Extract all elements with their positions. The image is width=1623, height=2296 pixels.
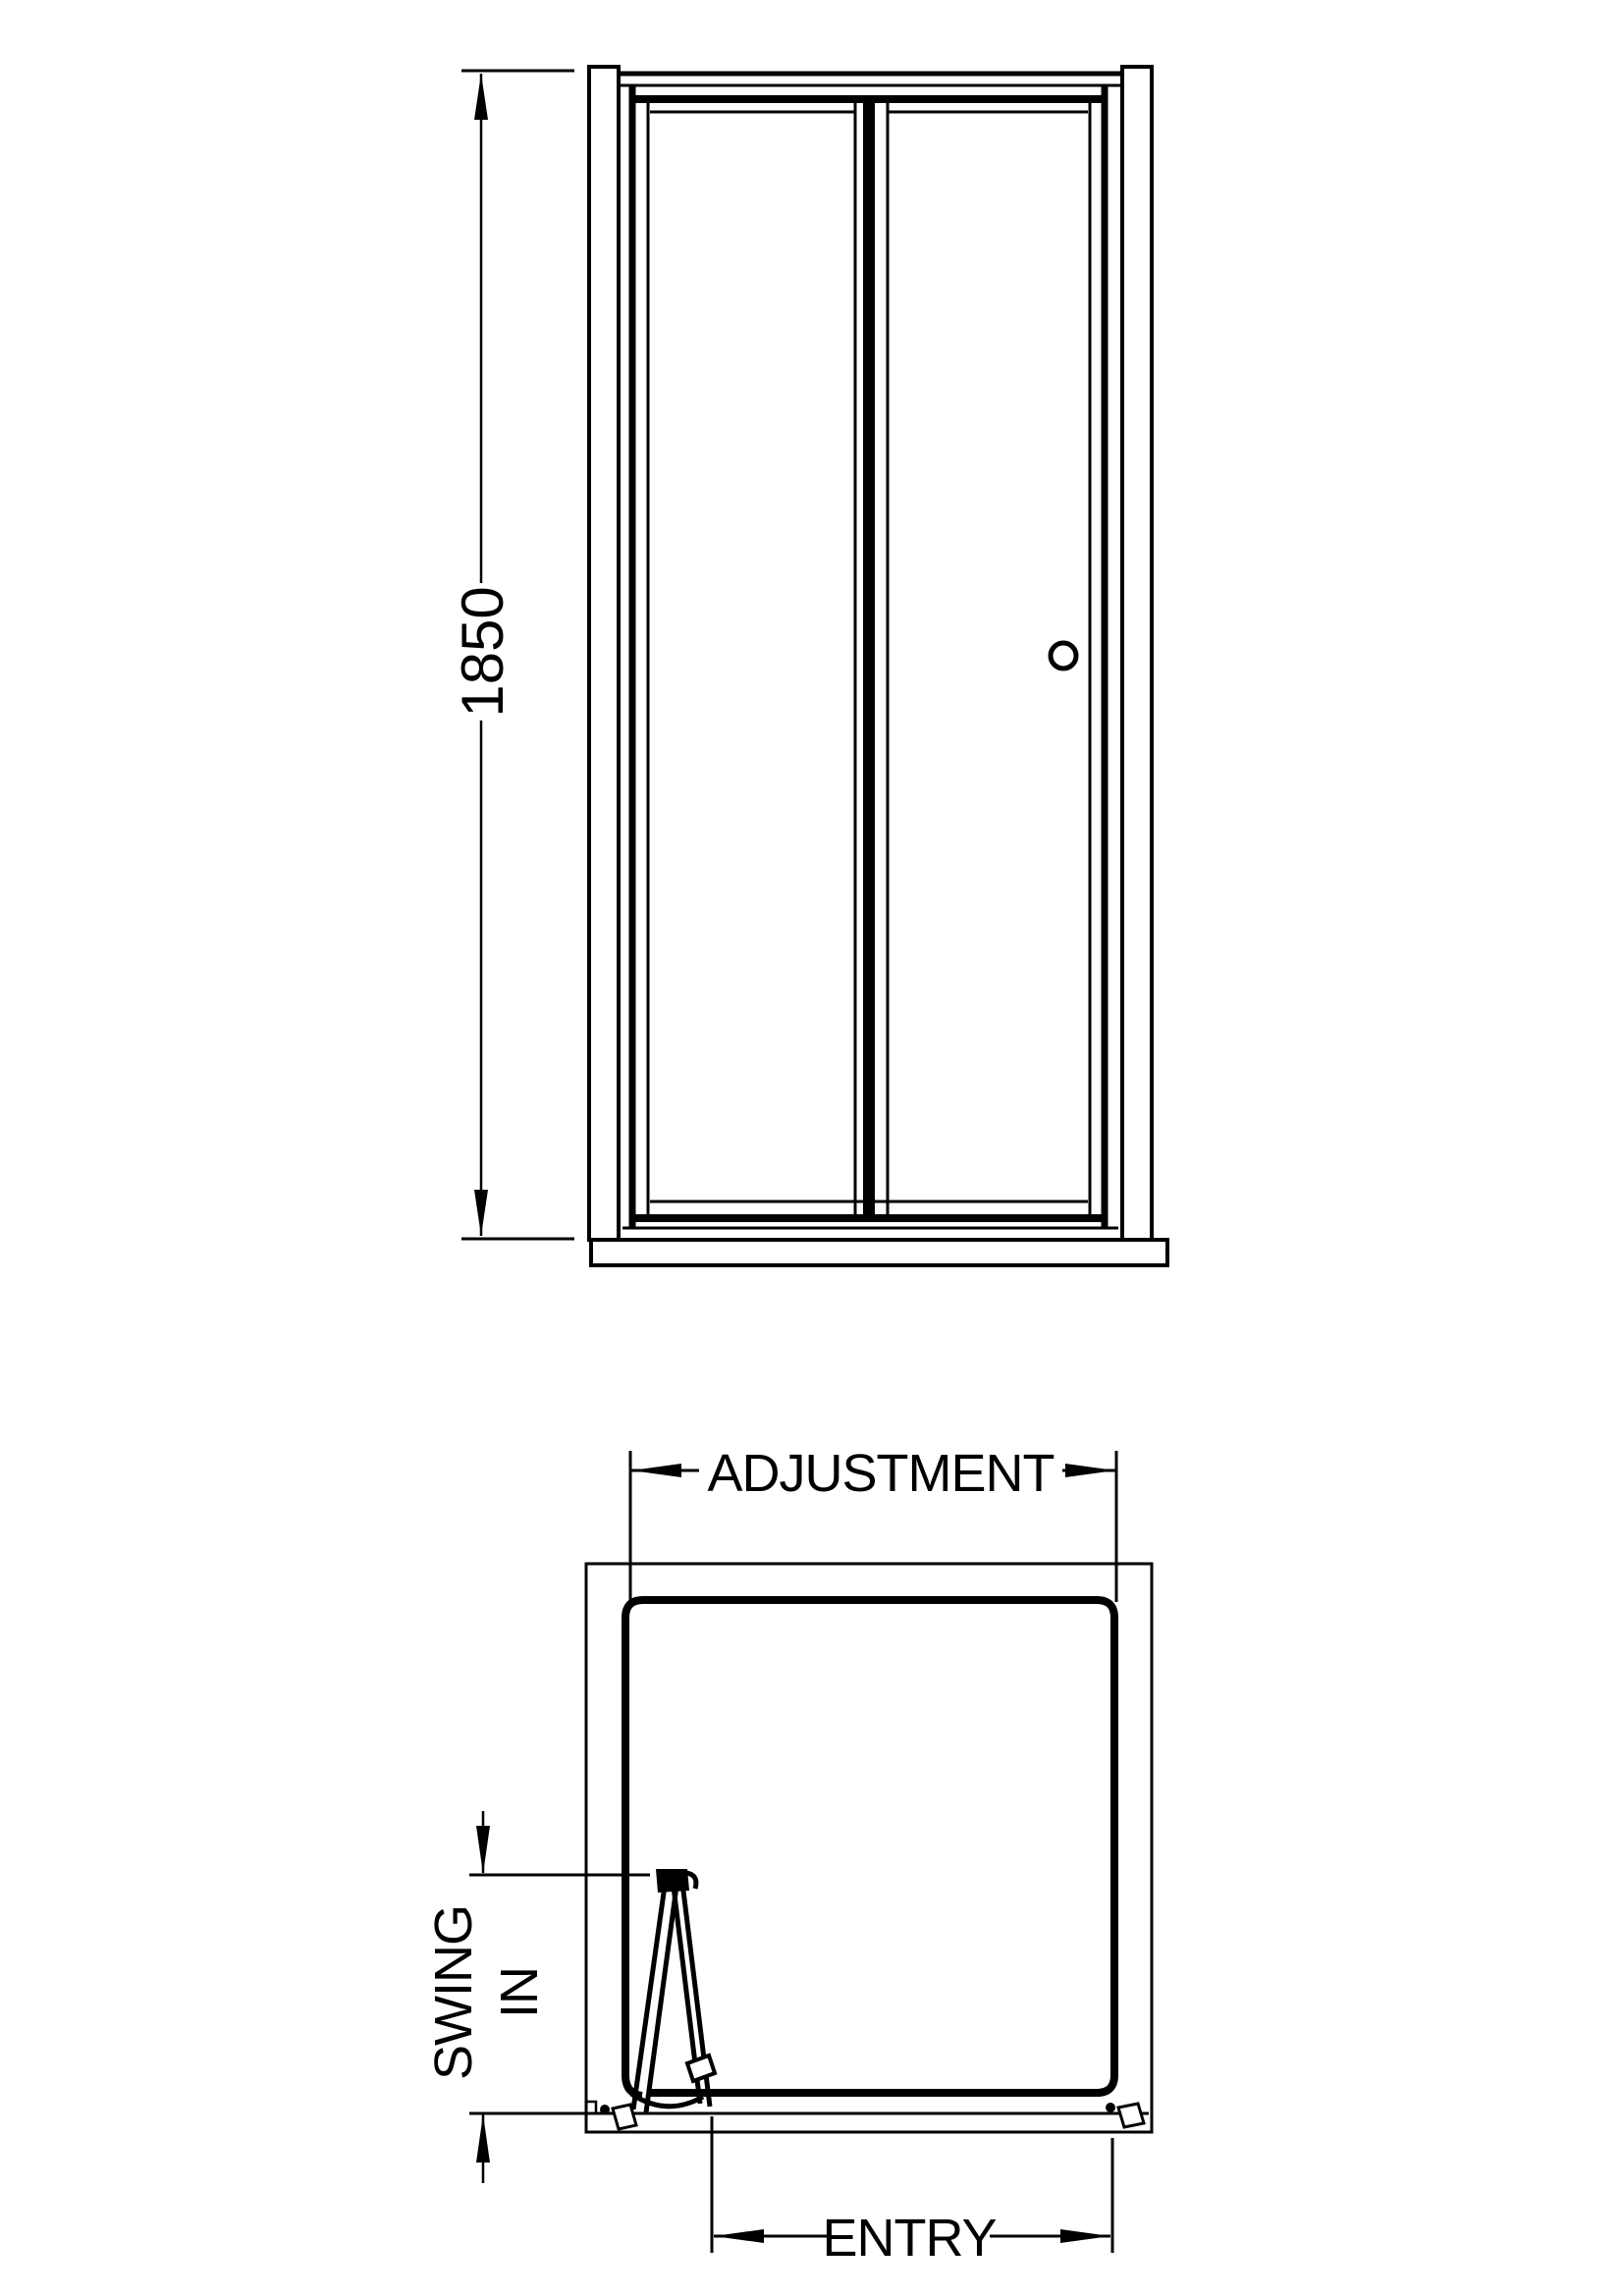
adjustment-arrow-left-icon <box>631 1464 681 1477</box>
elevation-view <box>589 67 1167 1265</box>
height-dim-arrow-up-icon <box>474 74 488 120</box>
left-wall-profile <box>589 67 619 1240</box>
height-dim-arrow-down-icon <box>474 1190 488 1236</box>
swing-arrow-down-icon <box>476 1826 490 1874</box>
right-bracket-pivot-icon <box>1106 2103 1115 2112</box>
drawing-svg: 1850 <box>0 0 1623 2296</box>
door-top-pivot <box>656 1869 689 1893</box>
door-knob-icon <box>1051 643 1076 668</box>
swing-dimension-label-line2: IN <box>490 1967 549 2018</box>
height-dimension-label: 1850 <box>450 586 515 717</box>
shower-tray-front <box>591 1240 1167 1265</box>
entry-dimension: ENTRY <box>712 2116 1112 2268</box>
adjustment-dimension-label: ADJUSTMENT <box>708 1444 1055 1503</box>
right-wall-profile <box>1122 67 1152 1240</box>
left-bracket-pivot-icon <box>600 2105 610 2114</box>
entry-arrow-right-icon <box>1060 2229 1110 2243</box>
entry-dimension-label: ENTRY <box>822 2209 996 2268</box>
right-bracket-body <box>1118 2104 1144 2127</box>
swing-dimension-label-line1: SWING <box>424 1905 483 2080</box>
technical-drawing-page: 1850 <box>0 0 1623 2296</box>
plan-view <box>469 1564 1152 2132</box>
plan-outer-wall-outline <box>586 1564 1152 2132</box>
height-dimension: 1850 <box>450 71 574 1239</box>
entry-arrow-left-icon <box>714 2229 764 2243</box>
adjustment-arrow-right-icon <box>1065 1464 1115 1477</box>
